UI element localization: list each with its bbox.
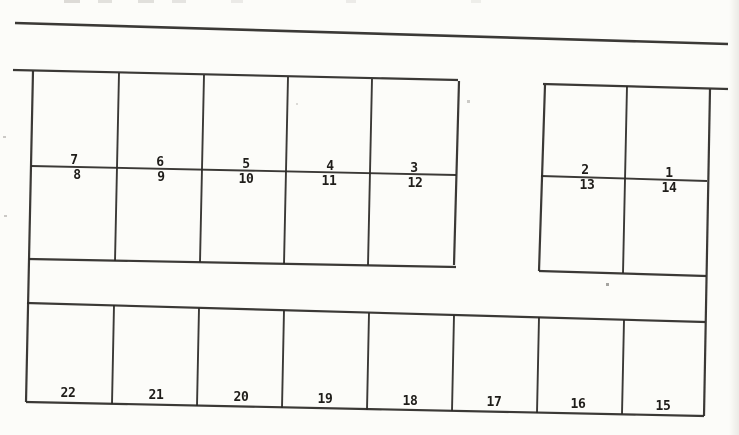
upper-right-block-left <box>539 85 545 271</box>
scan-artifact-top-edge-smudge <box>346 0 356 3</box>
space-label-10: 10 <box>238 172 254 187</box>
space-label-1: 1 <box>665 166 673 181</box>
parking-layout-diagram: 76543891011122113142221201918171615 <box>0 0 739 435</box>
space-label-16: 16 <box>570 397 586 412</box>
scan-artifact-top-edge-smudge <box>231 0 243 3</box>
upper-left-block-bottom <box>29 259 456 267</box>
space-label-18: 18 <box>402 394 418 409</box>
space-label-11: 11 <box>321 174 337 189</box>
upper-left-divider-2 <box>200 75 204 262</box>
scan-artifact-speck <box>4 215 7 217</box>
scan-artifact-top-edge-smudge <box>98 0 112 3</box>
bottom-divider-4 <box>367 313 369 410</box>
scan-artifact-speck <box>3 136 6 138</box>
space-label-15: 15 <box>655 399 670 414</box>
space-label-13: 13 <box>579 178 594 193</box>
space-label-21: 21 <box>148 388 164 403</box>
scan-artifact-top-edge-smudge <box>172 0 186 3</box>
upper-right-middle-line <box>541 176 707 181</box>
bottom-divider-1 <box>112 305 114 404</box>
road-edge-line <box>15 23 728 44</box>
space-label-6: 6 <box>156 155 164 170</box>
bottom-divider-7 <box>622 320 624 414</box>
scan-artifact-speck <box>296 103 298 105</box>
right-boundary <box>704 89 710 416</box>
scan-artifact-top-edge-smudge <box>471 0 481 3</box>
space-label-9: 9 <box>157 170 165 185</box>
scan-artifact-speck <box>467 100 470 103</box>
space-label-7: 7 <box>70 153 78 168</box>
parking-layout-canvas: 76543891011122113142221201918171615 <box>0 0 739 435</box>
space-label-12: 12 <box>407 176 422 191</box>
space-label-3: 3 <box>410 161 418 176</box>
space-label-22: 22 <box>60 386 75 401</box>
scan-artifact-top-edge-smudge <box>64 0 80 3</box>
space-label-17: 17 <box>486 395 501 410</box>
bottom-divider-2 <box>197 308 199 406</box>
bottom-row-bottom <box>26 402 704 416</box>
upper-left-block-top <box>13 70 458 80</box>
scan-artifact-speck <box>606 283 609 286</box>
space-label-4: 4 <box>326 159 334 174</box>
space-label-5: 5 <box>242 157 250 172</box>
bottom-divider-3 <box>282 310 284 408</box>
space-label-2: 2 <box>581 163 589 178</box>
scan-artifact-top-edge-smudge <box>138 0 154 3</box>
bottom-divider-6 <box>537 317 539 413</box>
upper-left-block-right <box>454 81 459 265</box>
upper-left-divider-4 <box>368 79 372 265</box>
space-label-8: 8 <box>73 168 81 183</box>
space-label-20: 20 <box>233 390 249 405</box>
upper-right-block-top <box>543 84 728 89</box>
left-boundary <box>26 71 33 402</box>
bottom-divider-5 <box>452 315 454 411</box>
space-label-14: 14 <box>661 181 677 196</box>
space-label-19: 19 <box>317 392 332 407</box>
bottom-row-top <box>27 303 705 322</box>
